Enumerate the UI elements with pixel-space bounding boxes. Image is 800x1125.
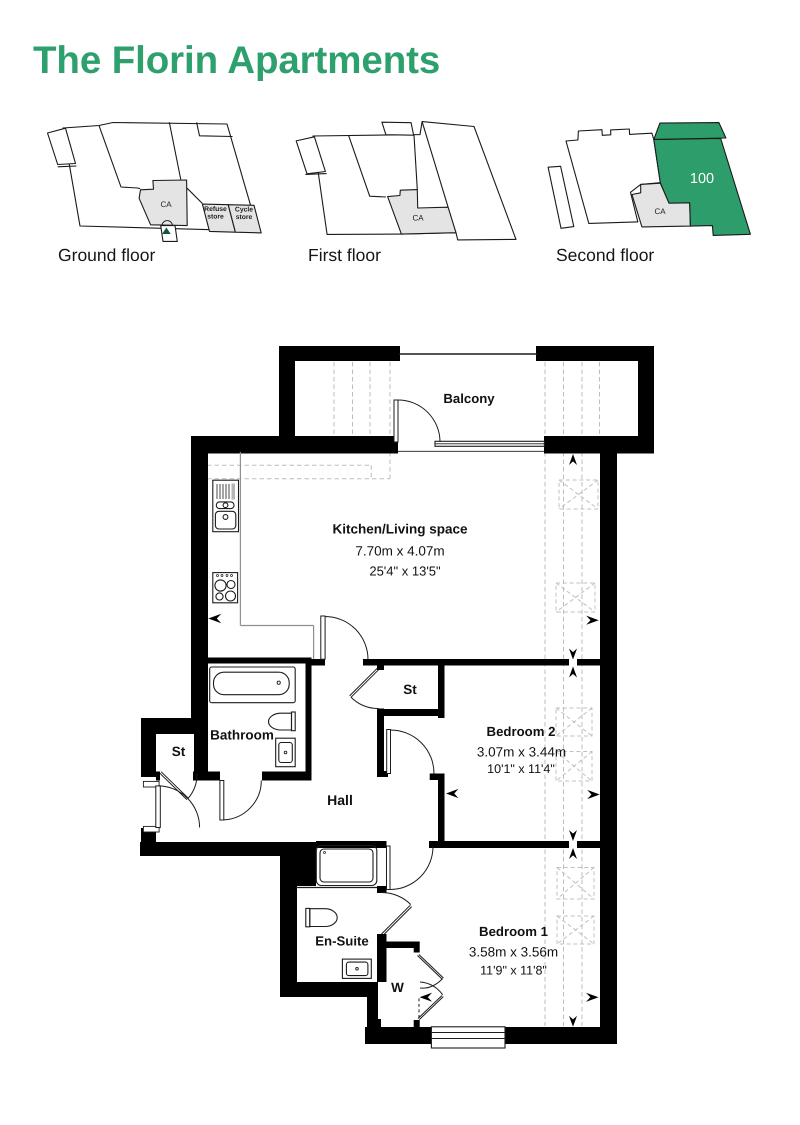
svg-text:Refuse: Refuse xyxy=(204,206,227,213)
svg-text:Bedroom 2: Bedroom 2 xyxy=(487,724,556,739)
svg-text:First floor: First floor xyxy=(308,245,381,265)
svg-text:Bathroom: Bathroom xyxy=(210,728,274,743)
svg-text:Balcony: Balcony xyxy=(443,391,495,406)
svg-text:W: W xyxy=(391,980,404,995)
svg-text:Bedroom 1: Bedroom 1 xyxy=(479,924,548,939)
svg-text:St: St xyxy=(172,744,186,759)
svg-text:10'1" x 11'4": 10'1" x 11'4" xyxy=(487,762,555,776)
svg-text:store: store xyxy=(236,214,253,221)
svg-text:The Florin Apartments: The Florin Apartments xyxy=(33,39,440,82)
svg-text:Kitchen/Living space: Kitchen/Living space xyxy=(332,522,468,537)
svg-text:En-Suite: En-Suite xyxy=(315,934,368,949)
svg-text:7.70m x 4.07m: 7.70m x 4.07m xyxy=(355,544,444,559)
svg-text:Ground floor: Ground floor xyxy=(58,245,155,265)
svg-text:3.07m x 3.44m: 3.07m x 3.44m xyxy=(477,745,566,760)
svg-text:St: St xyxy=(403,682,417,697)
svg-text:Hall: Hall xyxy=(327,792,353,808)
svg-text:25'4" x 13'5": 25'4" x 13'5" xyxy=(369,564,441,579)
svg-text:CA: CA xyxy=(160,200,172,209)
svg-text:Cycle: Cycle xyxy=(235,207,253,214)
svg-text:100: 100 xyxy=(690,171,714,187)
svg-text:store: store xyxy=(207,214,224,221)
svg-text:3.58m x 3.56m: 3.58m x 3.56m xyxy=(469,945,558,960)
svg-text:11'9" x 11'8": 11'9" x 11'8" xyxy=(480,964,547,978)
svg-text:CA: CA xyxy=(412,214,424,223)
svg-text:CA: CA xyxy=(654,207,666,216)
svg-text:Second floor: Second floor xyxy=(556,245,654,265)
